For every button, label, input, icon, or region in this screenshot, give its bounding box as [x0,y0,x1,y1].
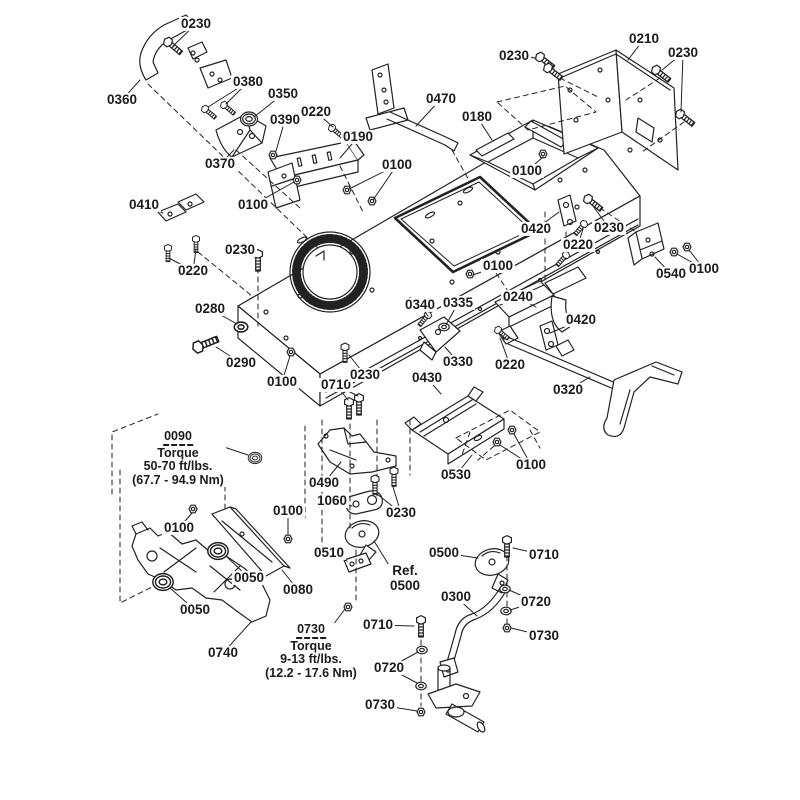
torque-title: Torque [157,446,198,460]
leader-line [509,590,536,602]
plate-0430 [405,387,504,464]
bracket-0490 [318,428,396,474]
leader-line [254,94,283,117]
drawbar-0320 [498,326,682,436]
leader-line [662,53,683,70]
nut-icon [508,426,516,434]
nut-icon [466,270,474,278]
leader-line [373,165,397,200]
leader-line [445,347,458,362]
leader-line [282,570,298,590]
leader-line [380,705,417,711]
nut-icon [344,603,352,611]
nut-icon [343,186,351,194]
leader-line [681,53,683,112]
leader-line [628,39,644,60]
leader-line [179,513,192,528]
torque-part-number: 0730 [296,623,326,639]
washer-icon [439,323,449,331]
ref-line2: 0500 [390,578,420,593]
leader-line [169,258,193,271]
leader-line [689,250,704,269]
bolt-icon [417,616,426,637]
leader-line [276,120,285,151]
nut-icon [287,348,295,356]
leader-line [416,99,441,126]
leader-line [122,80,140,100]
nut-icon [284,535,292,543]
leader-line [427,378,441,394]
leader-line [511,628,544,636]
parts-diagram: 0230036003800350022003900190037004700180… [0,0,800,800]
leader-line [324,462,341,483]
leader-line [510,602,536,610]
torque-spec: 50-70 ft/lbs. [144,459,213,473]
bolt-icon [254,250,263,271]
bumper-bar [140,15,232,88]
leader-line [514,434,531,465]
axle-spindle [428,665,486,733]
washer-icon [500,585,510,593]
lever-0470 [366,64,458,151]
bolt-icon [390,467,398,486]
leader-line [456,597,477,616]
torque-title: Torque [290,639,331,653]
latch-0410 [158,194,204,221]
torque-note-0090: 0090 Torque 50-70 ft/lbs. (67.7 - 94.9 N… [130,430,226,487]
leader-line [655,257,671,274]
ref-line1: Ref. [392,563,418,578]
leader-line [216,347,241,363]
nut-icon [670,248,678,256]
nut-icon [269,151,277,159]
bolt-icon [355,394,364,415]
grommet-icon [248,452,262,463]
leader-line [144,205,163,213]
grommet-icon [241,112,258,126]
torque-note-0730: 0730 Torque 9-13 ft/lbs. (12.2 - 17.6 Nm… [263,623,359,680]
leader-line [389,668,417,683]
leader-line [568,377,590,390]
leader-line [514,56,536,58]
leader-line [210,309,237,324]
grommet-icon [208,543,228,560]
torque-metric: (12.2 - 17.6 Nm) [265,666,357,680]
washer-icon [501,607,511,615]
bolt-icon [191,334,220,354]
nut-icon [368,197,376,205]
nut-icon [503,624,511,632]
torque-part-number: 0090 [163,430,193,446]
leader-line [316,112,333,127]
bolt-icon [345,398,354,419]
torque-metric: (67.7 - 94.9 Nm) [132,473,224,487]
bolt-icon [674,108,696,128]
diagram-canvas [0,0,800,800]
leader-line [393,487,401,513]
nut-icon [417,708,425,716]
leader-line [389,652,418,668]
screw-icon [327,123,345,139]
torque-spec: 9-13 ft/lbs. [280,652,342,666]
leader-line [444,553,478,558]
plate-0510 [344,553,371,572]
leader-line [677,254,704,269]
leader-line [500,445,531,465]
leader-line [477,117,492,140]
ref-0500-label: Ref. 0500 [388,564,422,593]
nut-icon [189,505,197,513]
nut-icon [683,243,691,251]
leader-line [513,548,544,555]
leader-line [329,553,347,561]
leader-line [378,625,414,626]
leader-line [170,588,195,610]
leader-line [226,82,248,104]
leader-line [223,622,251,653]
washer-icon [417,646,427,654]
rod-0300 [440,588,506,677]
bracket-0190 [268,138,364,208]
nut-icon [293,176,301,184]
